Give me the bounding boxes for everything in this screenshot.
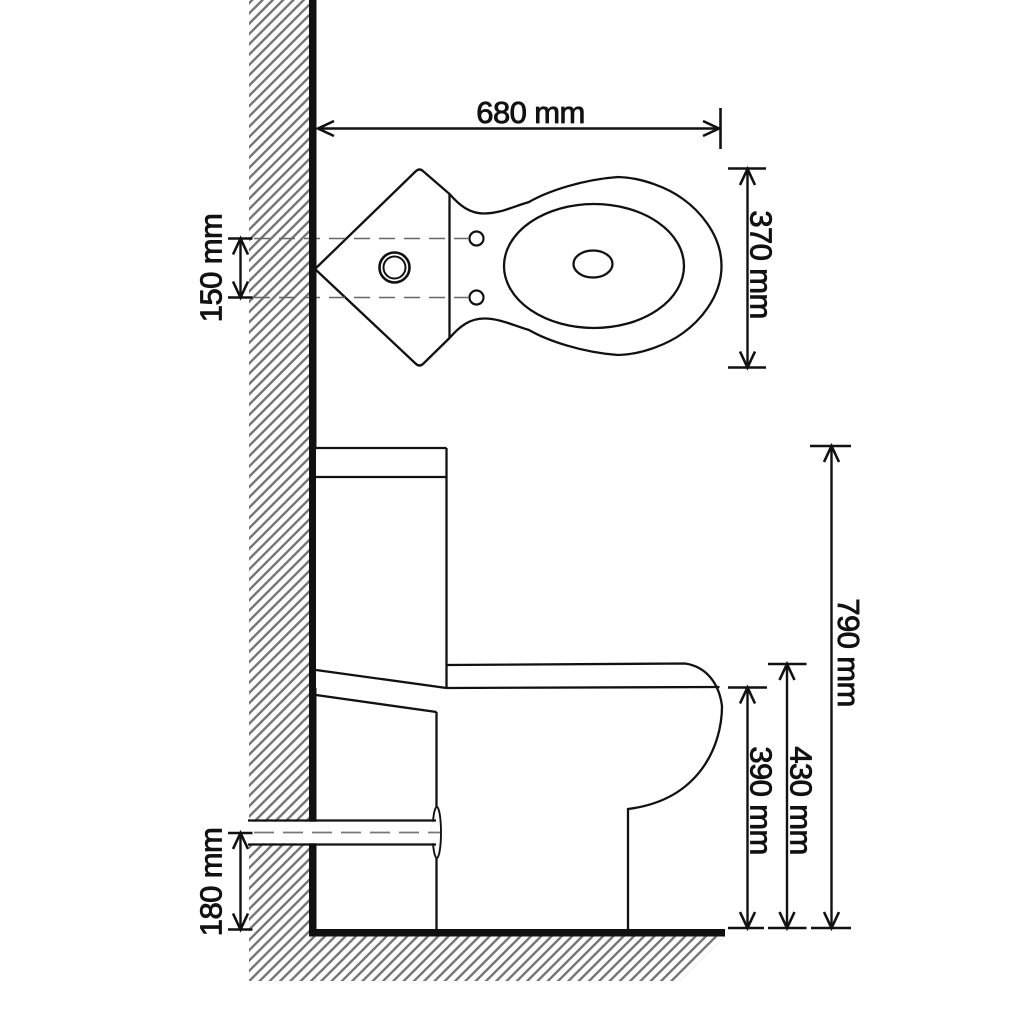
svg-text:150 mm: 150 mm <box>194 214 229 322</box>
svg-text:370 mm: 370 mm <box>744 210 779 318</box>
svg-text:430 mm: 430 mm <box>784 746 819 854</box>
svg-text:180 mm: 180 mm <box>194 828 229 936</box>
svg-text:790 mm: 790 mm <box>831 598 866 706</box>
svg-text:390 mm: 390 mm <box>744 746 779 854</box>
svg-text:680 mm: 680 mm <box>476 95 584 130</box>
